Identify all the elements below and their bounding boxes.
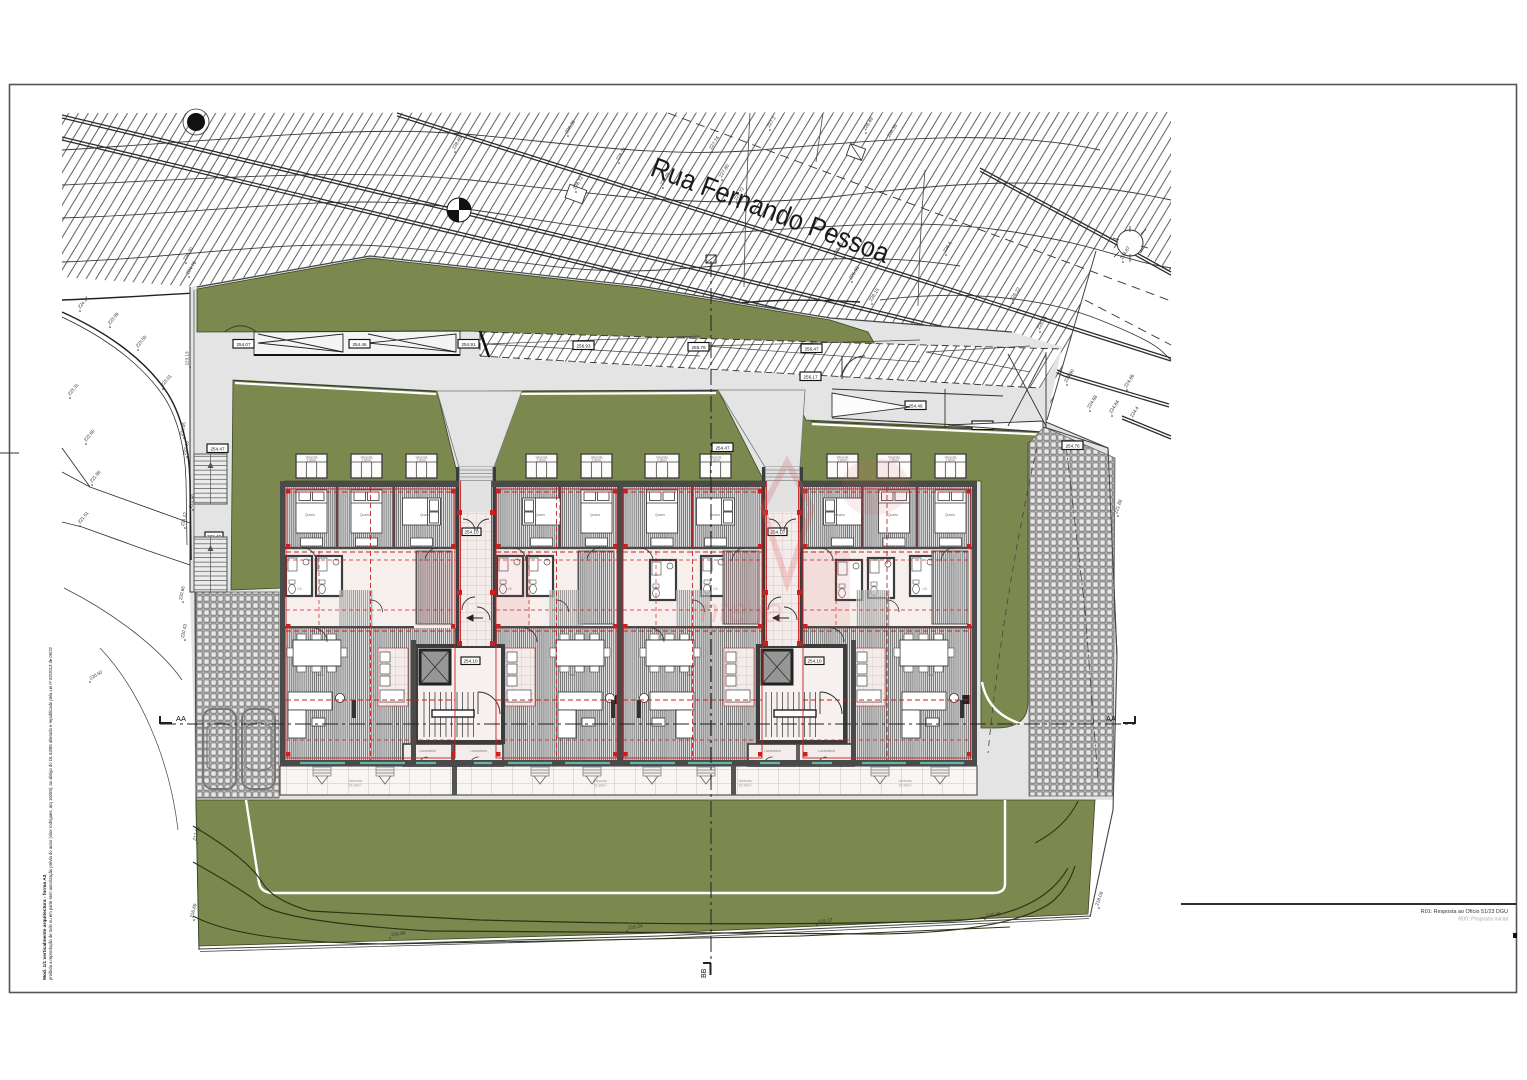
svg-text:15.30m²: 15.30m² (348, 784, 362, 788)
svg-text:Lavandaria: Lavandaria (470, 749, 487, 753)
svg-text:2.80m²: 2.80m² (417, 459, 427, 463)
svg-text:Quarto: Quarto (420, 513, 430, 517)
svg-text:254.47: 254.47 (715, 445, 729, 450)
svg-text:2.80m²: 2.80m² (838, 459, 848, 463)
svg-text:I.S.: I.S. (713, 587, 718, 591)
svg-text:254.76: 254.76 (1065, 443, 1079, 448)
svg-text:Quarto: Quarto (305, 513, 315, 517)
svg-text:Sala: Sala (569, 673, 576, 677)
svg-text:Lavandaria: Lavandaria (419, 749, 436, 753)
svg-text:Sala: Sala (317, 673, 324, 677)
svg-text:2.80m²: 2.80m² (362, 459, 372, 463)
svg-text:Quarto: Quarto (945, 513, 955, 517)
svg-text:AA: AA (176, 714, 186, 723)
svg-text:Lavandaria: Lavandaria (818, 749, 835, 753)
svg-text:254.10: 254.10 (807, 658, 821, 663)
svg-text:Lavandaria: Lavandaria (764, 749, 781, 753)
svg-text:Quarto: Quarto (590, 513, 600, 517)
svg-text:Quarto: Quarto (655, 513, 665, 517)
svg-text:254.10: 254.10 (463, 658, 477, 663)
svg-text:Quarto: Quarto (835, 513, 845, 517)
svg-text:15.30m²: 15.30m² (898, 784, 912, 788)
svg-text:254.91: 254.91 (461, 342, 475, 347)
svg-text:223.13: 223.13 (185, 351, 190, 365)
svg-text:Sala: Sala (927, 673, 934, 677)
svg-text:254.46: 254.46 (908, 403, 922, 408)
svg-text:R01: Resposta ao Ofício 51/23: R01: Resposta ao Ofício 51/23 DGU (1421, 909, 1508, 915)
svg-text:2.80m²: 2.80m² (711, 459, 721, 463)
svg-text:Sala: Sala (685, 673, 692, 677)
svg-text:256.93: 256.93 (576, 343, 590, 348)
svg-text:I.S.: I.S. (922, 587, 927, 591)
svg-text:Varanda: Varanda (738, 779, 751, 783)
svg-text:R00: Proposta Inicial: R00: Proposta Inicial (1458, 917, 1508, 923)
svg-text:AA: AA (1106, 714, 1116, 723)
svg-text:254.07: 254.07 (236, 342, 250, 347)
svg-text:2.80m²: 2.80m² (592, 459, 602, 463)
svg-text:2.80m²: 2.80m² (307, 459, 317, 463)
svg-text:2.80m²: 2.80m² (657, 459, 667, 463)
svg-text:15.30m²: 15.30m² (593, 784, 607, 788)
svg-text:Varanda: Varanda (348, 779, 361, 783)
svg-text:15.30m²: 15.30m² (738, 784, 752, 788)
svg-text:nte ia: nte ia (700, 592, 783, 630)
svg-text:Quarto: Quarto (535, 513, 545, 517)
svg-text:2.80m²: 2.80m² (537, 459, 547, 463)
svg-text:2.80m²: 2.80m² (946, 459, 956, 463)
svg-text:256.17: 256.17 (803, 374, 817, 379)
svg-text:256.47: 256.47 (804, 346, 818, 351)
svg-text:256.76: 256.76 (691, 345, 705, 350)
svg-text:I.S.: I.S. (297, 587, 302, 591)
svg-text:Quarto: Quarto (360, 513, 370, 517)
svg-text:Varanda: Varanda (898, 779, 911, 783)
svg-text:proibida a reprodução de todo: proibida a reprodução de todo ou em part… (48, 646, 53, 980)
svg-text:BB: BB (701, 968, 708, 978)
svg-text:254.47: 254.47 (210, 446, 224, 451)
svg-text:254.46: 254.46 (352, 342, 366, 347)
svg-text:Quarto: Quarto (888, 513, 898, 517)
